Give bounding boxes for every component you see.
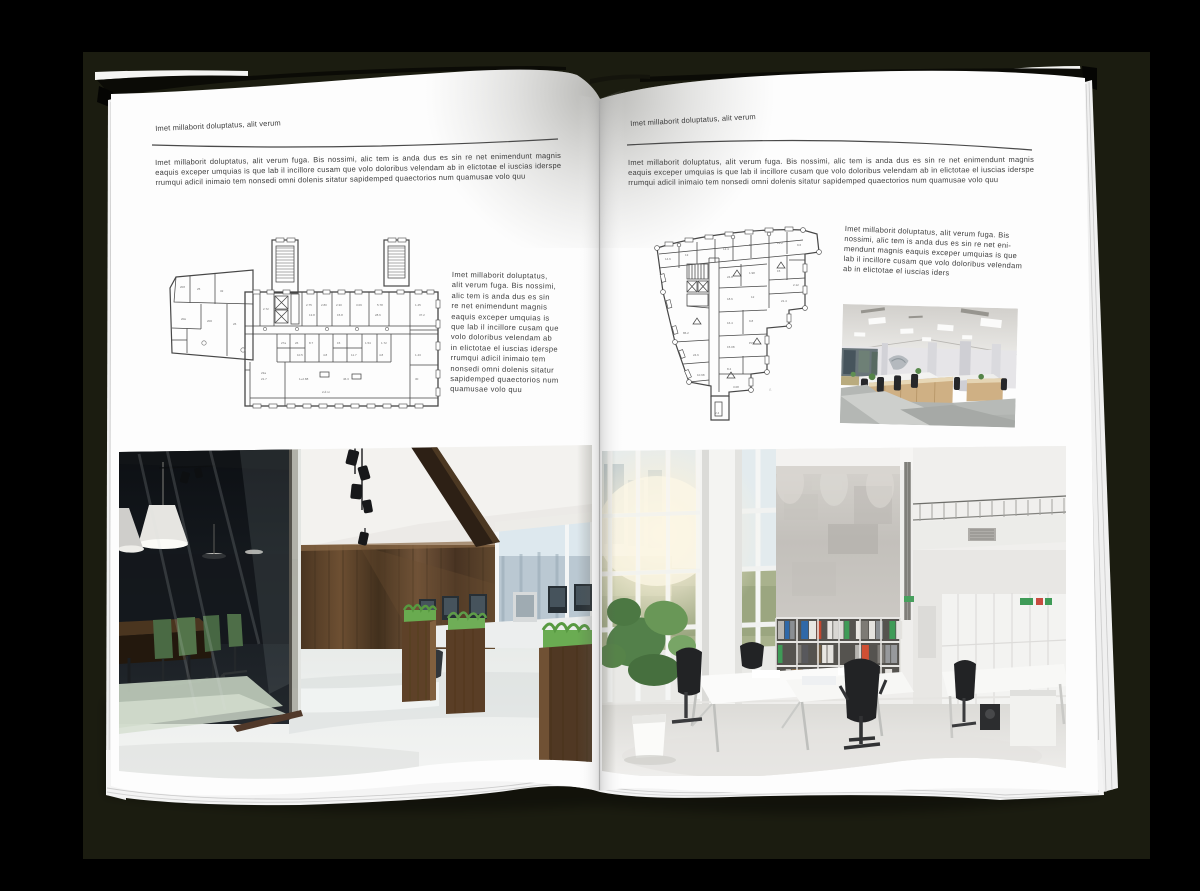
svg-text:2.80: 2.80 xyxy=(321,303,327,307)
svg-text:13.2: 13.2 xyxy=(777,241,783,245)
svg-text:30: 30 xyxy=(415,377,419,381)
svg-text:2.72: 2.72 xyxy=(263,307,269,311)
svg-text:3.08: 3.08 xyxy=(733,385,739,389)
svg-text:2.12: 2.12 xyxy=(793,283,799,287)
svg-text:2.30: 2.30 xyxy=(336,303,342,307)
svg-text:10.98: 10.98 xyxy=(697,373,705,377)
svg-text:14.6: 14.6 xyxy=(665,257,671,261)
svg-text:21.7: 21.7 xyxy=(261,377,267,381)
svg-text:20б: 20б xyxy=(180,285,185,289)
svg-text:21.4: 21.4 xyxy=(781,299,787,303)
svg-text:37.2: 37.2 xyxy=(419,313,425,317)
svg-text:15.08: 15.08 xyxy=(727,345,735,349)
svg-text:2.4: 2.4 xyxy=(715,411,720,415)
svg-text:9.6: 9.6 xyxy=(797,243,802,247)
svg-text:4.8: 4.8 xyxy=(379,353,384,357)
svg-text:△: △ xyxy=(769,387,772,391)
svg-text:РУФ: РУФ xyxy=(749,341,756,345)
svg-text:11: 11 xyxy=(749,243,752,247)
svg-text:13.8: 13.8 xyxy=(309,313,315,317)
svg-text:3.09: 3.09 xyxy=(356,303,362,307)
svg-text:24.8: 24.8 xyxy=(727,275,733,279)
svg-text:15.8: 15.8 xyxy=(337,313,343,317)
svg-text:9.8: 9.8 xyxy=(749,319,754,323)
svg-text:10.5: 10.5 xyxy=(297,353,303,357)
svg-text:8.4: 8.4 xyxy=(727,367,732,371)
svg-text:1.54: 1.54 xyxy=(365,341,371,345)
svg-text:2.75: 2.75 xyxy=(306,303,312,307)
svg-text:26: 26 xyxy=(233,322,237,326)
svg-text:12.4: 12.4 xyxy=(723,247,729,251)
svg-text:25: 25 xyxy=(197,287,201,291)
svg-text:24.6: 24.6 xyxy=(693,353,699,357)
svg-text:8.7: 8.7 xyxy=(309,341,314,345)
svg-text:1.72: 1.72 xyxy=(381,341,387,345)
svg-text:12: 12 xyxy=(751,295,755,299)
svg-text:1.45: 1.45 xyxy=(415,303,421,307)
svg-text:27a: 27a xyxy=(281,341,286,345)
svg-text:15: 15 xyxy=(337,341,341,345)
svg-text:4.8: 4.8 xyxy=(323,353,328,357)
svg-text:46.3: 46.3 xyxy=(343,377,349,381)
svg-text:1+2.88: 1+2.88 xyxy=(299,377,309,381)
svg-text:1.43: 1.43 xyxy=(415,353,421,357)
svg-text:200: 200 xyxy=(207,319,212,323)
svg-text:23a: 23a xyxy=(261,371,266,375)
svg-text:15: 15 xyxy=(777,269,781,273)
svg-text:26: 26 xyxy=(295,341,299,345)
svg-text:1.98: 1.98 xyxy=(749,271,755,275)
svg-text:16.4: 16.4 xyxy=(727,321,733,325)
svg-text:20в: 20в xyxy=(181,317,186,321)
svg-text:18.6: 18.6 xyxy=(727,297,733,301)
svg-text:28.6: 28.6 xyxy=(375,313,381,317)
svg-text:32: 32 xyxy=(220,289,224,293)
svg-text:11.7: 11.7 xyxy=(351,353,357,357)
svg-text:86.2: 86.2 xyxy=(683,331,689,335)
svg-text:13: 13 xyxy=(685,253,689,257)
svg-text:2-й эт: 2-й эт xyxy=(322,390,331,394)
svg-text:5.78: 5.78 xyxy=(377,303,383,307)
